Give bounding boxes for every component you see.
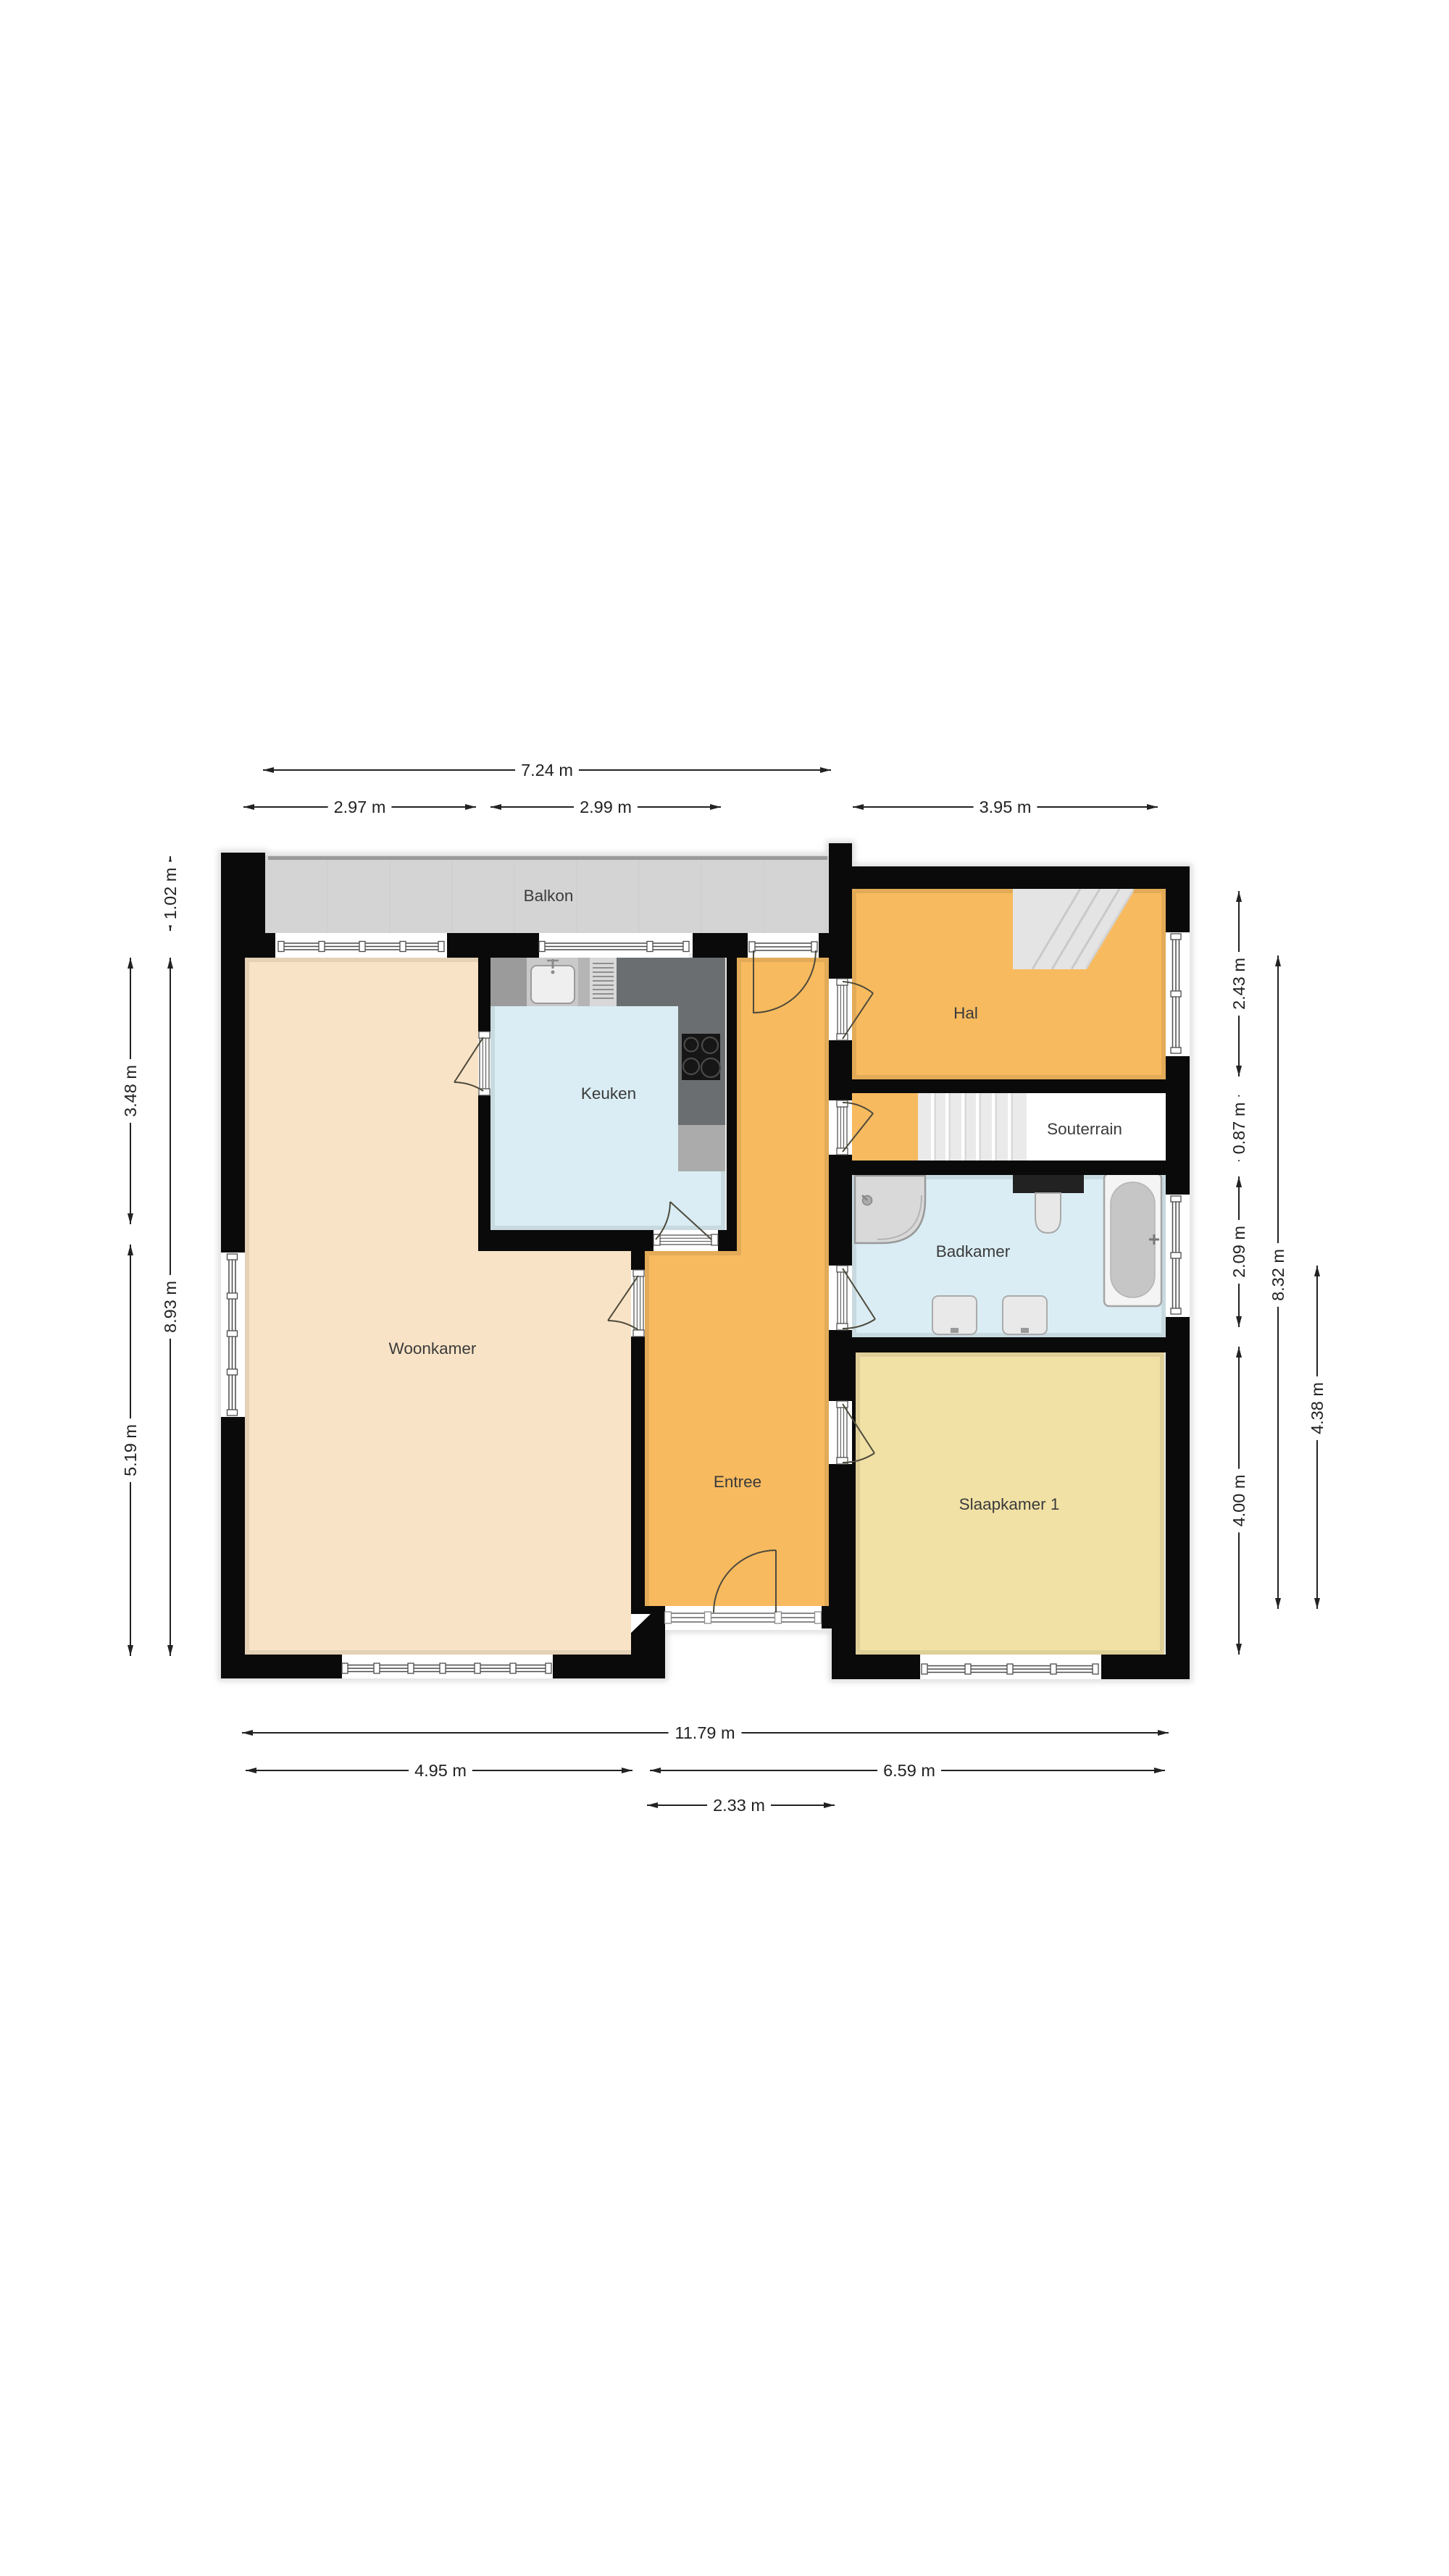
svg-text:0.87 m: 0.87 m	[1229, 1103, 1248, 1155]
svg-text:1.02 m: 1.02 m	[161, 868, 180, 920]
svg-text:Woonkamer: Woonkamer	[389, 1339, 477, 1358]
svg-text:8.93 m: 8.93 m	[161, 1281, 180, 1333]
svg-text:3.48 m: 3.48 m	[121, 1065, 140, 1117]
svg-text:Balkon: Balkon	[524, 887, 574, 905]
svg-text:4.00 m: 4.00 m	[1229, 1475, 1248, 1527]
svg-text:2.33 m: 2.33 m	[713, 1796, 765, 1815]
svg-text:5.19 m: 5.19 m	[121, 1424, 140, 1476]
svg-text:Entree: Entree	[714, 1473, 761, 1491]
svg-text:Hal: Hal	[953, 1004, 978, 1022]
svg-text:11.79 m: 11.79 m	[675, 1723, 735, 1742]
svg-text:6.59 m: 6.59 m	[883, 1761, 935, 1780]
svg-text:2.09 m: 2.09 m	[1229, 1226, 1248, 1278]
svg-text:Slaapkamer 1: Slaapkamer 1	[959, 1495, 1060, 1513]
svg-text:Badkamer: Badkamer	[936, 1242, 1011, 1260]
svg-text:7.24 m: 7.24 m	[521, 761, 573, 779]
svg-text:2.97 m: 2.97 m	[334, 798, 386, 816]
svg-text:Souterrain: Souterrain	[1047, 1120, 1122, 1138]
svg-text:2.43 m: 2.43 m	[1229, 958, 1248, 1010]
svg-text:8.32 m: 8.32 m	[1269, 1249, 1287, 1301]
svg-text:4.38 m: 4.38 m	[1308, 1382, 1327, 1434]
svg-text:4.95 m: 4.95 m	[414, 1761, 467, 1780]
svg-text:2.99 m: 2.99 m	[580, 798, 632, 816]
svg-text:3.95 m: 3.95 m	[980, 798, 1032, 816]
svg-text:Keuken: Keuken	[581, 1084, 636, 1103]
